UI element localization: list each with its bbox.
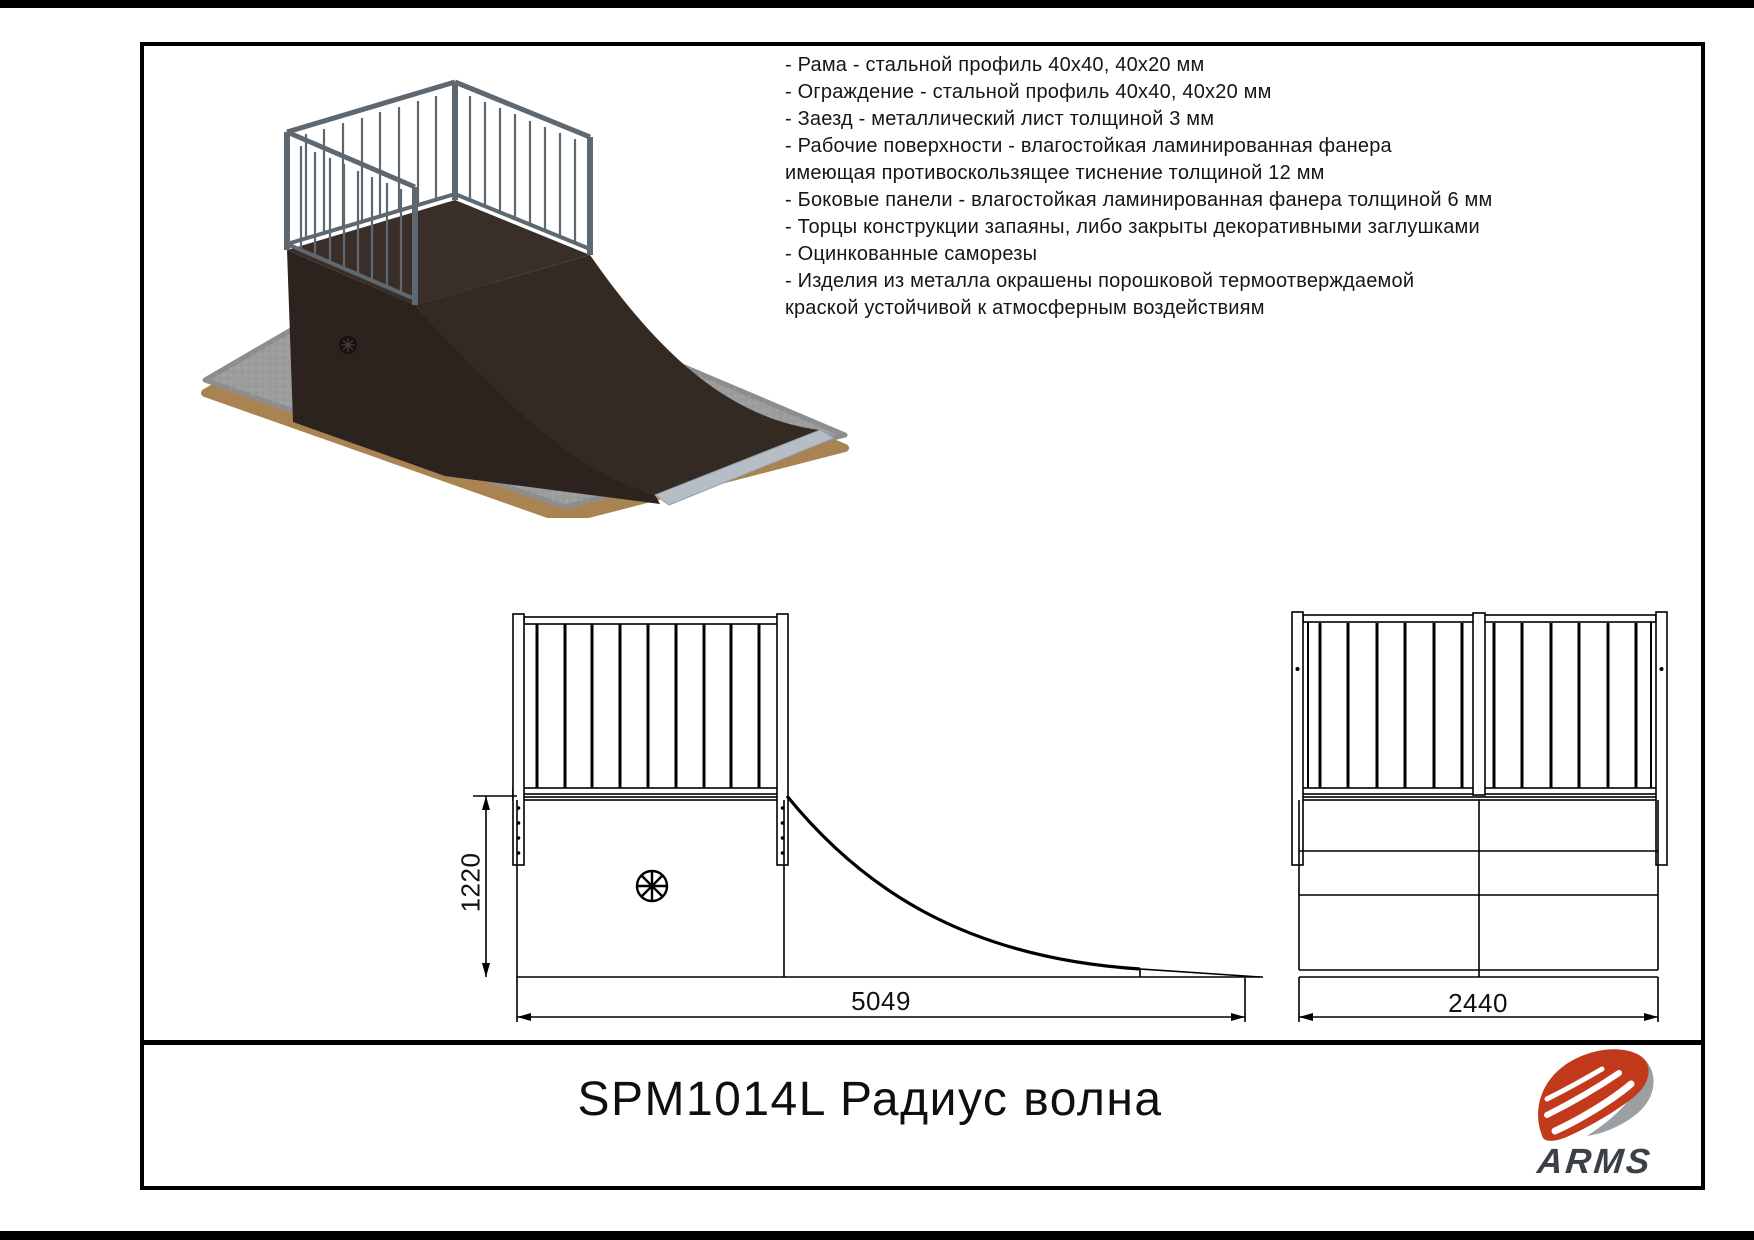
spec-line: - Рама - стальной профиль 40х40, 40х20 м…: [785, 52, 1545, 79]
spec-line: - Торцы конструкции запаяны, либо закрыт…: [785, 214, 1545, 241]
front-left-post: [1292, 612, 1303, 865]
page-title: SPM1014L Радиус волна: [340, 1072, 1400, 1127]
spec-line: - Боковые панели - влагостойкая ламиниро…: [785, 187, 1545, 214]
spec-line: - Рабочие поверхности - влагостойкая лам…: [785, 133, 1545, 160]
spec-line: - Изделия из металла окрашены порошковой…: [785, 268, 1545, 295]
front-center-post: [1473, 613, 1485, 795]
ramp-3d-render: [170, 48, 860, 518]
title-block-divider: [140, 1040, 1705, 1045]
arms-logo: ARMS: [1495, 1046, 1695, 1186]
dim-width-label: 2440: [1403, 988, 1553, 1019]
side-view-drawing: [440, 560, 1280, 1030]
front-lower-rail: [1299, 797, 1659, 800]
side-bolt-dots: [517, 806, 785, 855]
side-lower-rail: [513, 797, 787, 800]
spec-sheet: - Рама - стальной профиль 40х40, 40х20 м…: [0, 0, 1754, 1240]
vent-symbol-icon: [637, 871, 667, 901]
spec-list: - Рама - стальной профиль 40х40, 40х20 м…: [785, 52, 1545, 322]
side-wave-curve: [787, 796, 1140, 969]
page-edge-bottom: [0, 1231, 1754, 1240]
side-mid-rail: [513, 788, 787, 794]
side-railing-bars: [537, 623, 759, 788]
spec-line: краской устойчивой к атмосферным воздейс…: [785, 295, 1545, 322]
spec-line: имеющая противоскользящее тиснение толщи…: [785, 160, 1545, 187]
arms-logo-text: ARMS: [1493, 1142, 1697, 1182]
spec-line: - Оцинкованные саморезы: [785, 241, 1545, 268]
ramp-body: [287, 200, 834, 505]
side-box-outline: [517, 800, 1263, 977]
side-entry-wedge: [1140, 969, 1260, 977]
side-left-post: [513, 614, 524, 865]
side-top-rail: [524, 617, 778, 624]
dim-height-label: 1220: [456, 808, 487, 958]
arms-logo-swoosh-icon: [1495, 1046, 1695, 1142]
vent-icon: [339, 336, 357, 354]
spec-line: - Ограждение - стальной профиль 40х40, 4…: [785, 79, 1545, 106]
spec-line: - Заезд - металлический лист толщиной 3 …: [785, 106, 1545, 133]
page-edge-top: [0, 0, 1754, 8]
side-right-post: [777, 614, 788, 865]
dim-length-label: 5049: [806, 986, 956, 1017]
front-box-outline: [1299, 800, 1658, 977]
front-view-drawing: [1280, 560, 1710, 1030]
